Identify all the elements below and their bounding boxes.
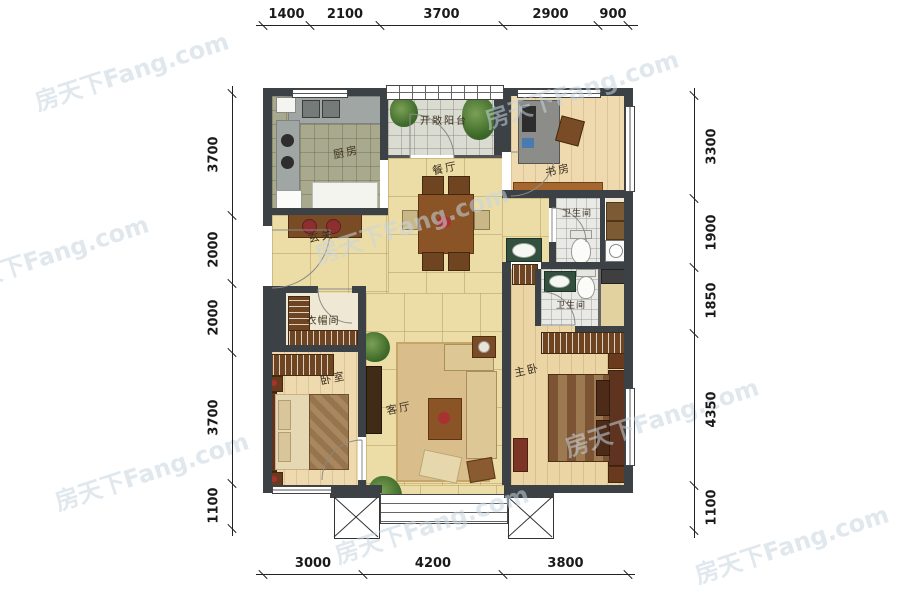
dim-value: 4350 — [705, 382, 720, 438]
dimension-line-right — [694, 88, 695, 538]
dim-value: 3300 — [705, 119, 720, 175]
dim-value: 2000 — [207, 290, 222, 346]
dim-value: 1900 — [705, 205, 720, 261]
dimension-line-bottom — [256, 574, 635, 575]
dim-value: 900 — [598, 7, 628, 22]
dim-value: 2900 — [503, 7, 598, 22]
dim-value: 1100 — [705, 480, 720, 536]
dimension-line-left — [232, 86, 233, 536]
floorplan-canvas: 房天下Fang.com 房天下Fang.com 房天下Fang.com 房天下F… — [0, 0, 900, 600]
dimension-line-top — [256, 25, 638, 26]
dim-value: 3800 — [503, 556, 628, 571]
dim-value: 2000 — [207, 222, 222, 278]
dim-value: 2100 — [310, 7, 380, 22]
cloakroom-label: 衣帽间 — [294, 312, 352, 327]
dim-value: 3700 — [207, 127, 222, 183]
dim-value: 1100 — [207, 478, 222, 534]
dim-value: 1400 — [263, 7, 310, 22]
dim-value: 3000 — [263, 556, 363, 571]
dim-value: 3700 — [380, 7, 503, 22]
balcony-label: 开敞阳台 — [406, 112, 482, 127]
bathroom2-label: 卫生间 — [546, 298, 596, 311]
bathroom1-label: 卫生间 — [552, 206, 602, 219]
dim-value: 4200 — [363, 556, 503, 571]
dim-value: 1850 — [705, 273, 720, 329]
dim-value: 3700 — [207, 390, 222, 446]
